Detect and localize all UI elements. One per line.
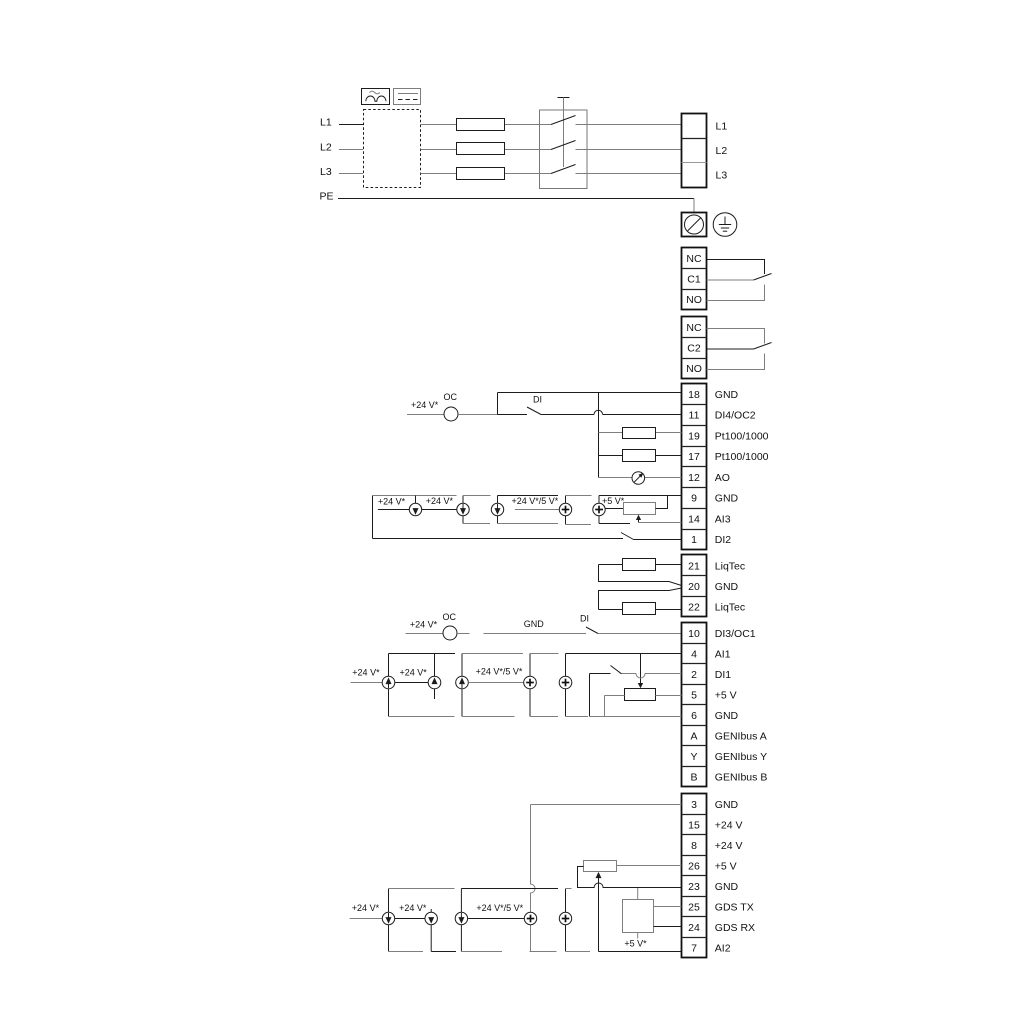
svg-text:A: A — [690, 731, 697, 743]
svg-text:+24 V*: +24 V* — [411, 400, 439, 410]
svg-text:NC: NC — [686, 253, 702, 265]
svg-text:GDS RX: GDS RX — [715, 922, 755, 934]
svg-text:PE: PE — [320, 191, 334, 203]
svg-text:GND: GND — [524, 619, 545, 629]
svg-text:C2: C2 — [687, 343, 701, 355]
svg-text:25: 25 — [688, 902, 700, 914]
svg-text:+5 V: +5 V — [715, 690, 737, 702]
svg-text:17: 17 — [688, 451, 700, 463]
svg-text:+24 V*: +24 V* — [400, 668, 428, 678]
svg-text:NC: NC — [686, 322, 702, 334]
svg-text:22: 22 — [688, 602, 700, 614]
svg-text:B: B — [690, 772, 697, 784]
svg-text:+24 V*: +24 V* — [352, 668, 380, 678]
svg-text:15: 15 — [688, 820, 700, 832]
svg-text:+5 V*: +5 V* — [624, 939, 647, 949]
svg-text:AI3: AI3 — [715, 514, 731, 526]
svg-text:DI3/OC1: DI3/OC1 — [715, 628, 756, 640]
svg-text:NO: NO — [686, 294, 702, 306]
svg-text:18: 18 — [688, 389, 700, 401]
svg-text:26: 26 — [688, 861, 700, 873]
svg-text:Pt100/1000: Pt100/1000 — [715, 431, 769, 443]
svg-text:21: 21 — [688, 561, 700, 573]
svg-text:+24 V*/5 V*: +24 V*/5 V* — [476, 903, 523, 913]
svg-text:Pt100/1000: Pt100/1000 — [715, 451, 769, 463]
svg-text:DI: DI — [533, 395, 542, 405]
svg-text:GND: GND — [715, 710, 739, 722]
svg-text:4: 4 — [691, 649, 697, 661]
svg-text:L1: L1 — [320, 117, 332, 129]
svg-text:+24 V*: +24 V* — [378, 497, 406, 507]
svg-text:14: 14 — [688, 514, 700, 526]
svg-text:DI1: DI1 — [715, 669, 732, 681]
svg-text:AI1: AI1 — [715, 649, 731, 661]
svg-text:+24 V*: +24 V* — [399, 903, 427, 913]
svg-text:1: 1 — [691, 534, 697, 546]
svg-text:DI: DI — [580, 614, 589, 624]
svg-text:L3: L3 — [716, 170, 728, 182]
svg-text:C1: C1 — [687, 274, 701, 286]
svg-text:GDS TX: GDS TX — [715, 902, 754, 914]
svg-text:8: 8 — [691, 840, 697, 852]
svg-text:Y: Y — [690, 751, 697, 763]
svg-text:LiqTec: LiqTec — [715, 561, 745, 573]
svg-text:GND: GND — [715, 799, 739, 811]
svg-text:10: 10 — [688, 628, 700, 640]
svg-text:DI4/OC2: DI4/OC2 — [715, 410, 756, 422]
svg-text:2: 2 — [691, 669, 697, 681]
svg-text:DI2: DI2 — [715, 534, 732, 546]
svg-text:+24 V: +24 V — [715, 840, 743, 852]
svg-text:L2: L2 — [716, 145, 728, 157]
svg-text:12: 12 — [688, 472, 700, 484]
svg-text:GND: GND — [715, 493, 739, 505]
svg-text:+24 V*/5 V*: +24 V*/5 V* — [512, 496, 559, 506]
svg-text:L2: L2 — [320, 142, 332, 154]
svg-text:AI2: AI2 — [715, 943, 731, 955]
svg-text:7: 7 — [691, 943, 697, 955]
svg-text:6: 6 — [691, 710, 697, 722]
svg-text:19: 19 — [688, 431, 700, 443]
svg-text:GENIbus Y: GENIbus Y — [715, 751, 767, 763]
svg-text:11: 11 — [689, 410, 700, 422]
svg-text:+24 V: +24 V — [715, 820, 743, 832]
svg-text:GENIbus B: GENIbus B — [715, 772, 768, 784]
svg-text:+5 V*: +5 V* — [602, 496, 625, 506]
svg-text:OC: OC — [443, 612, 457, 622]
svg-text:24: 24 — [688, 922, 700, 934]
svg-text:20: 20 — [688, 581, 700, 593]
svg-text:9: 9 — [691, 493, 697, 505]
svg-text:5: 5 — [691, 690, 697, 702]
svg-text:+24 V*: +24 V* — [426, 496, 454, 506]
svg-text:NO: NO — [686, 363, 702, 375]
svg-text:LiqTec: LiqTec — [715, 602, 745, 614]
svg-text:GND: GND — [715, 581, 739, 593]
svg-text:GND: GND — [715, 881, 739, 893]
svg-text:+24 V*/5 V*: +24 V*/5 V* — [476, 667, 523, 677]
svg-text:GENIbus A: GENIbus A — [715, 731, 767, 743]
svg-text:AO: AO — [715, 472, 730, 484]
svg-text:+24 V*: +24 V* — [410, 620, 438, 630]
svg-text:L3: L3 — [320, 166, 332, 178]
svg-text:3: 3 — [691, 799, 697, 811]
svg-text:+24 V*: +24 V* — [352, 903, 380, 913]
svg-text:L1: L1 — [716, 121, 728, 133]
svg-text:OC: OC — [444, 392, 458, 402]
svg-text:+5 V: +5 V — [715, 861, 737, 873]
svg-text:23: 23 — [688, 881, 700, 893]
svg-text:GND: GND — [715, 389, 739, 401]
